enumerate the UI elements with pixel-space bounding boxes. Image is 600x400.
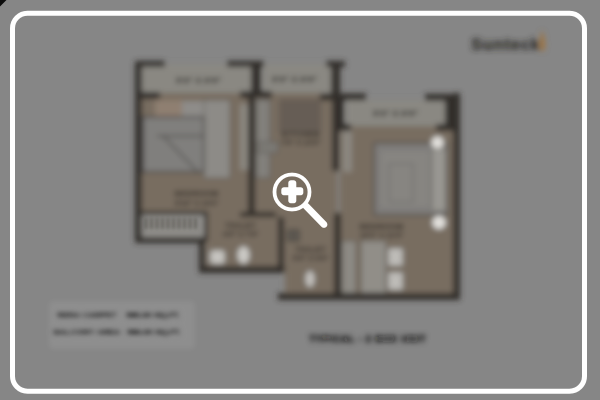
svg-text:9'10" X 10'0": 9'10" X 10'0" <box>175 201 219 208</box>
svg-text:7'0" X 10'0": 7'0" X 10'0" <box>281 140 321 147</box>
svg-text:RERA CARPET: RERA CARPET <box>56 311 117 320</box>
svg-text:5'0" X 8'0": 5'0" X 8'0" <box>293 256 329 263</box>
svg-text:10'0" X 11'6": 10'0" X 11'6" <box>360 233 404 240</box>
svg-text:TYPICAL - 2 BHK UNIT: TYPICAL - 2 BHK UNIT <box>310 334 427 344</box>
svg-text:KITCHEN: KITCHEN <box>282 132 321 139</box>
svg-text:BEDROOM: BEDROOM <box>360 224 404 231</box>
svg-text:5'2" X 8'6": 5'2" X 8'6" <box>176 78 221 85</box>
svg-text:BALCONY AREA: BALCONY AREA <box>53 328 121 337</box>
svg-text:5'2" X 8'6": 5'2" X 8'6" <box>373 111 418 118</box>
svg-text:TOILET: TOILET <box>295 247 326 254</box>
svg-text:5'3" X 8'6": 5'3" X 8'6" <box>272 77 317 84</box>
svg-text:566.00 SQ.FT.: 566.00 SQ.FT. <box>127 327 182 337</box>
svg-text:565.00 SQ.FT.: 565.00 SQ.FT. <box>126 310 181 320</box>
svg-text:BEDROOM: BEDROOM <box>175 191 219 198</box>
svg-text:Sunteck: Sunteck <box>471 36 541 54</box>
svg-text:4'0" X 7'6": 4'0" X 7'6" <box>223 232 259 239</box>
svg-text:TOILET: TOILET <box>225 223 256 230</box>
